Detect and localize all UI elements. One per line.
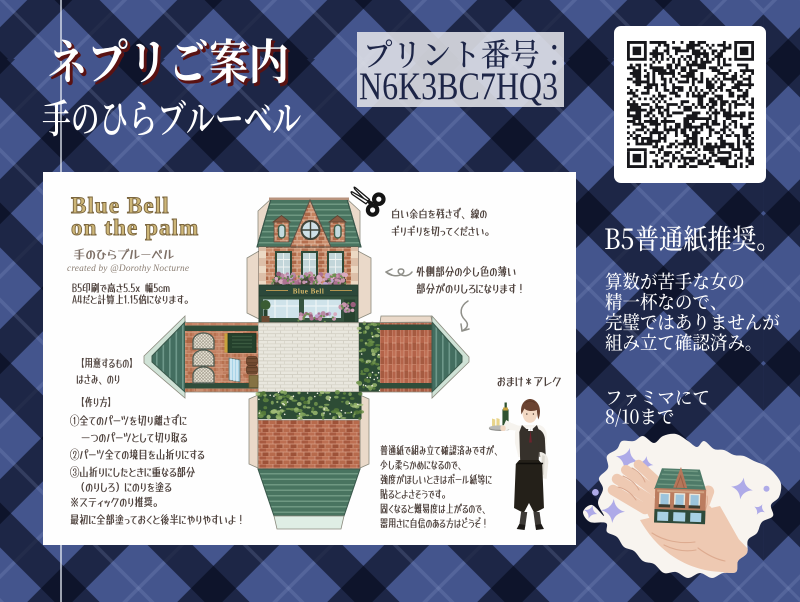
svg-text:Blue Bell: Blue Bell bbox=[293, 288, 325, 296]
